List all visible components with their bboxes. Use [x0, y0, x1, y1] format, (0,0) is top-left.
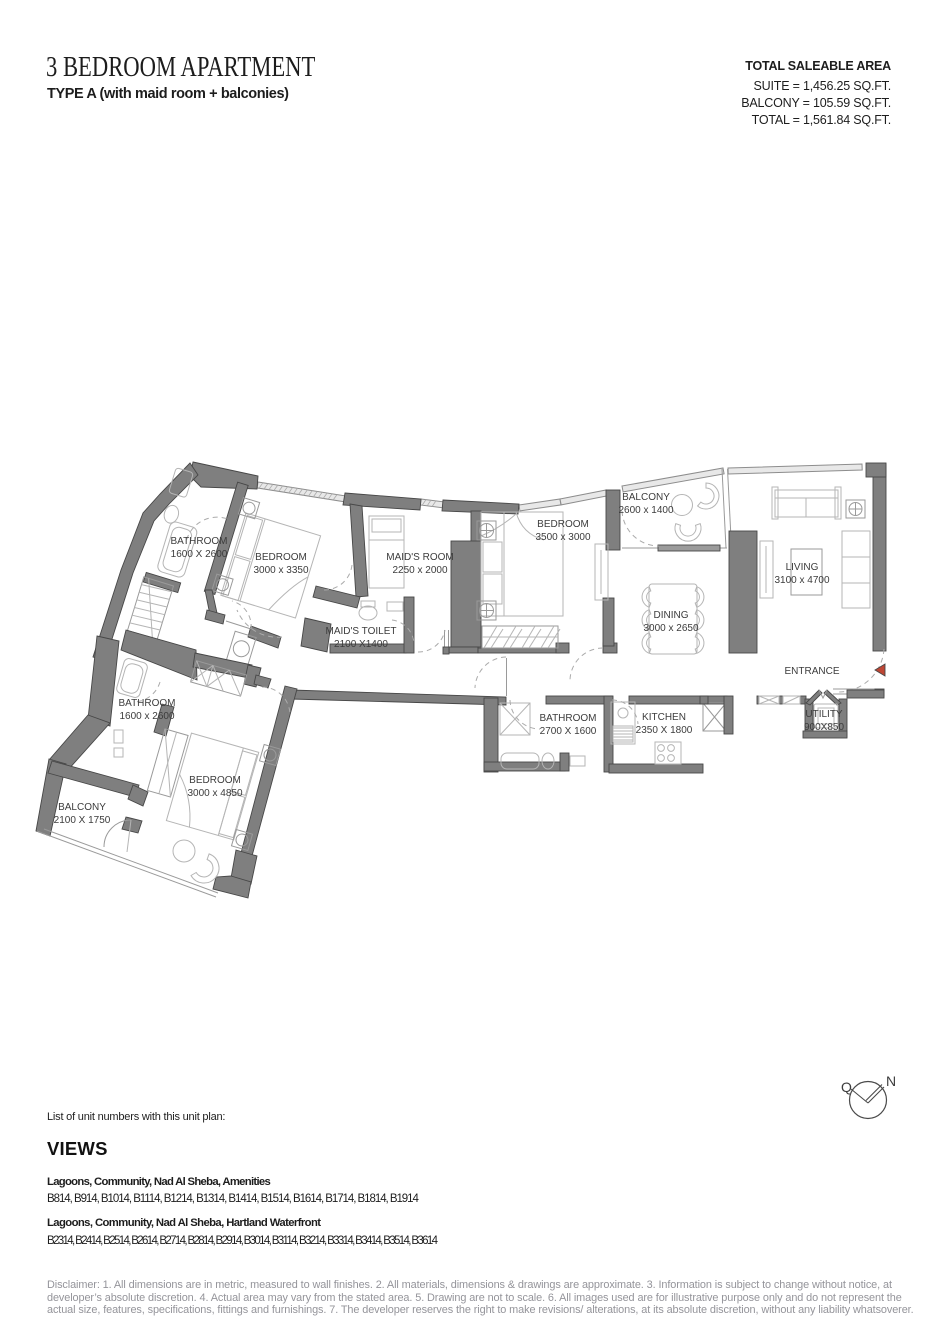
- svg-text:ENTRANCE: ENTRANCE: [784, 666, 839, 677]
- svg-text:LIVING: LIVING: [786, 562, 819, 573]
- svg-text:2350 X 1800: 2350 X 1800: [636, 725, 693, 736]
- svg-text:BEDROOM: BEDROOM: [537, 519, 589, 530]
- svg-text:DINING: DINING: [654, 610, 689, 621]
- svg-text:BALCONY: BALCONY: [58, 802, 106, 813]
- svg-text:BATHROOM: BATHROOM: [118, 698, 175, 709]
- svg-text:3000 x 4850: 3000 x 4850: [187, 788, 242, 799]
- svg-text:1600 x 2600: 1600 x 2600: [119, 711, 174, 722]
- svg-text:BEDROOM: BEDROOM: [255, 552, 307, 563]
- svg-text:BATHROOM: BATHROOM: [539, 713, 596, 724]
- svg-text:2600 x 1400: 2600 x 1400: [618, 505, 673, 516]
- svg-text:MAID'S TOILET: MAID'S TOILET: [325, 626, 396, 637]
- svg-text:3000 x 3350: 3000 x 3350: [253, 565, 308, 576]
- svg-text:BEDROOM: BEDROOM: [189, 775, 241, 786]
- svg-text:N: N: [886, 1073, 896, 1089]
- svg-text:3000 x 2650: 3000 x 2650: [643, 623, 698, 634]
- svg-text:UTILITY: UTILITY: [805, 709, 843, 720]
- svg-text:Q: Q: [841, 1079, 852, 1095]
- svg-text:BATHROOM: BATHROOM: [170, 536, 227, 547]
- svg-text:MAID'S ROOM: MAID'S ROOM: [386, 552, 453, 563]
- svg-text:2250 x 2000: 2250 x 2000: [392, 565, 447, 576]
- svg-text:3100 x 4700: 3100 x 4700: [774, 575, 829, 586]
- svg-text:3500 x 3000: 3500 x 3000: [535, 532, 590, 543]
- svg-text:2100 X1400: 2100 X1400: [334, 639, 388, 650]
- svg-text:1600 X 2600: 1600 X 2600: [171, 549, 228, 560]
- svg-text:KITCHEN: KITCHEN: [642, 712, 686, 723]
- svg-text:2700 X 1600: 2700 X 1600: [540, 726, 597, 737]
- svg-text:900X850: 900X850: [804, 722, 844, 733]
- svg-text:BALCONY: BALCONY: [622, 492, 670, 503]
- svg-text:2100 X 1750: 2100 X 1750: [54, 815, 111, 826]
